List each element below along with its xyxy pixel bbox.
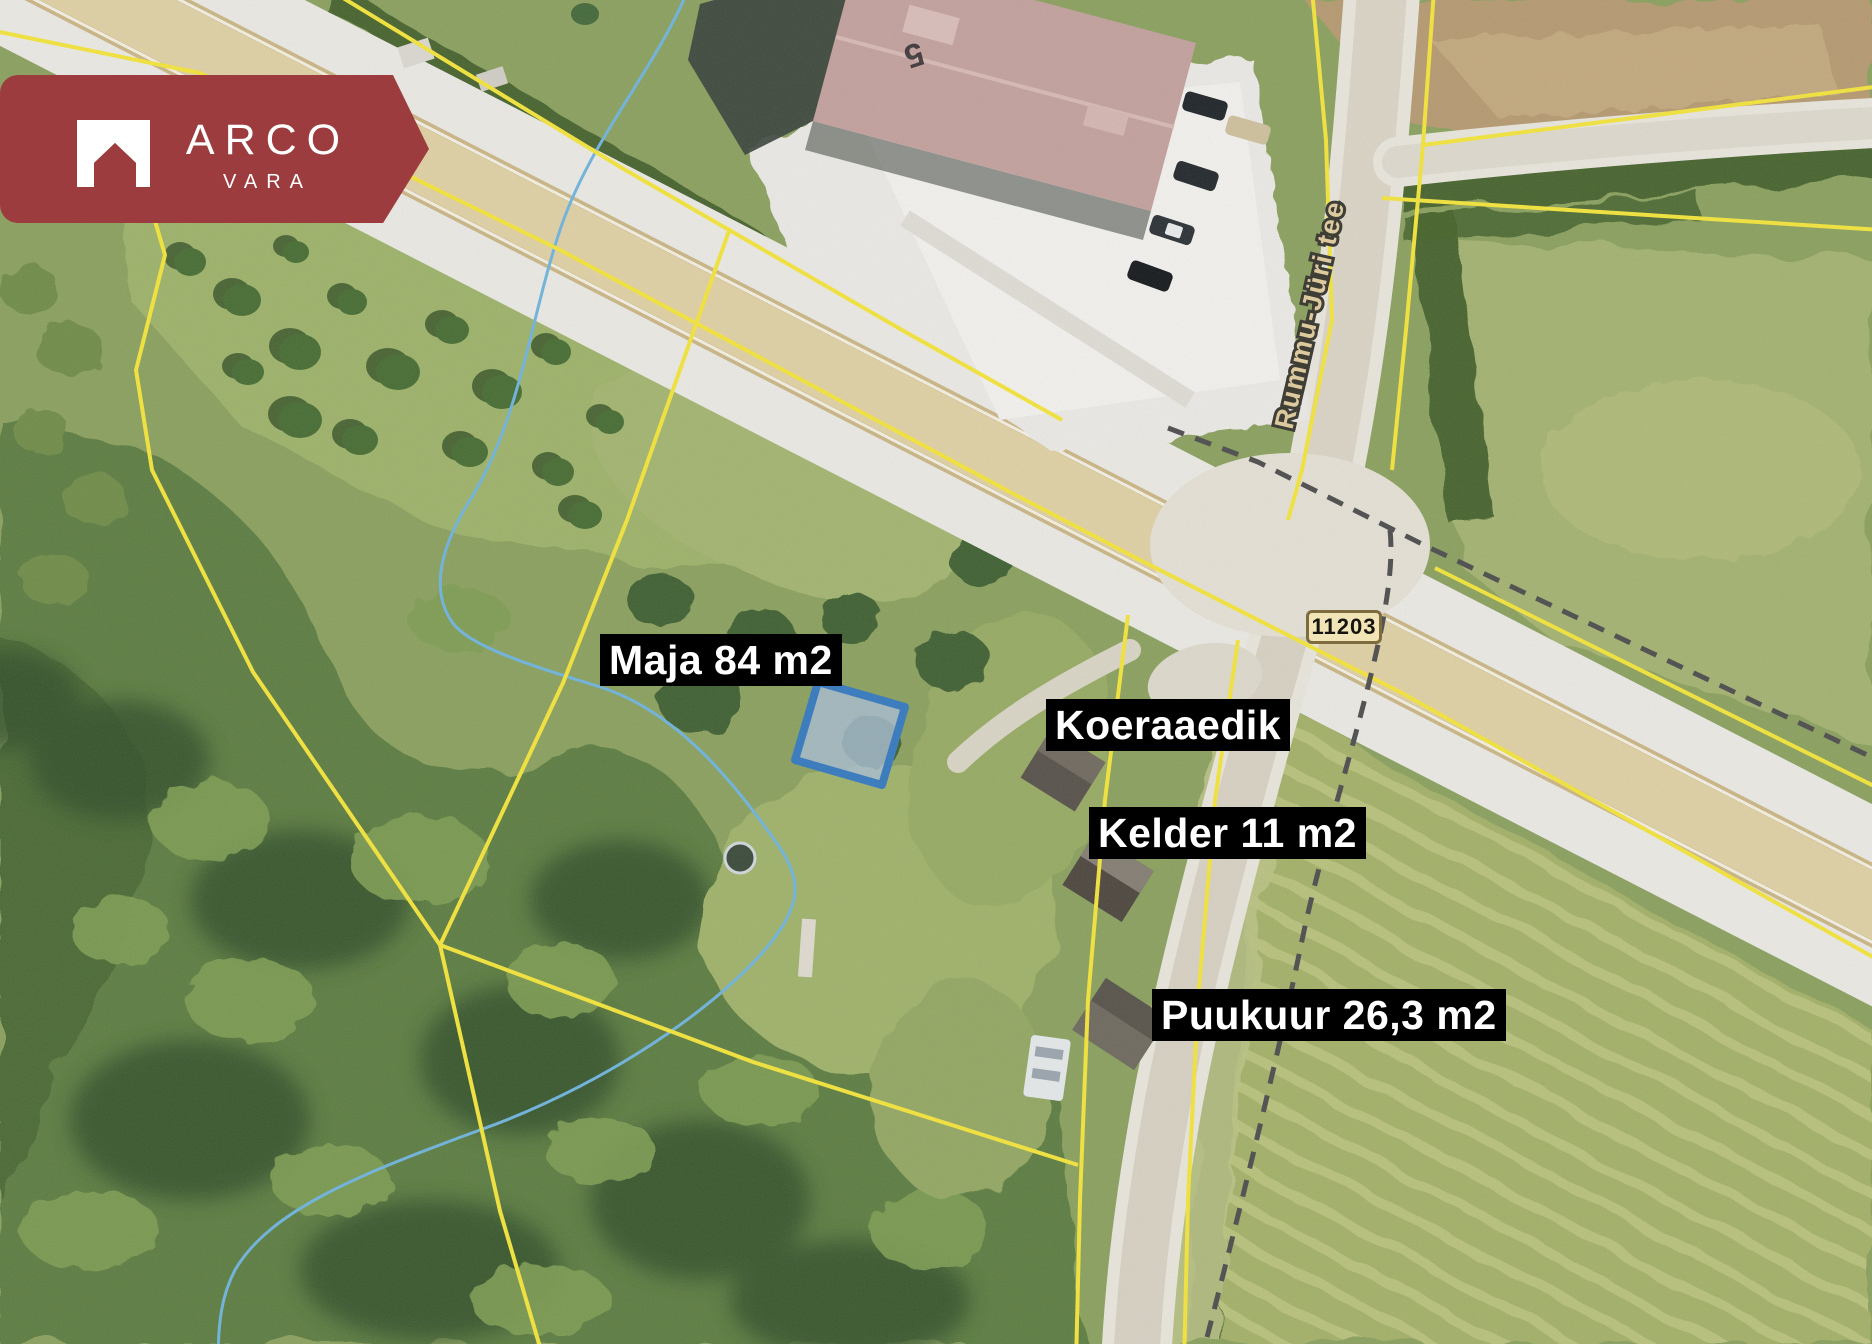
road-number-badge: 11203 [1306, 610, 1382, 644]
aerial-map-screenshot: 5 Rummu-Jüri tee Maja 84 m2 Koeraaedik K… [0, 0, 1872, 1344]
annotation-kelder: Kelder 11 m2 [1089, 807, 1366, 859]
annotation-koeraaedik: Koeraaedik [1046, 699, 1290, 751]
annotation-maja: Maja 84 m2 [600, 634, 842, 686]
brand-name: ARCO [186, 119, 350, 162]
brand-subname: VARA [223, 172, 312, 192]
arco-vara-ribbon: ARCO VARA [0, 75, 429, 223]
arco-vara-house-icon [77, 120, 150, 187]
annotation-puukuur: Puukuur 26,3 m2 [1152, 989, 1506, 1041]
arco-vara-wordmark: ARCO VARA [183, 119, 343, 192]
